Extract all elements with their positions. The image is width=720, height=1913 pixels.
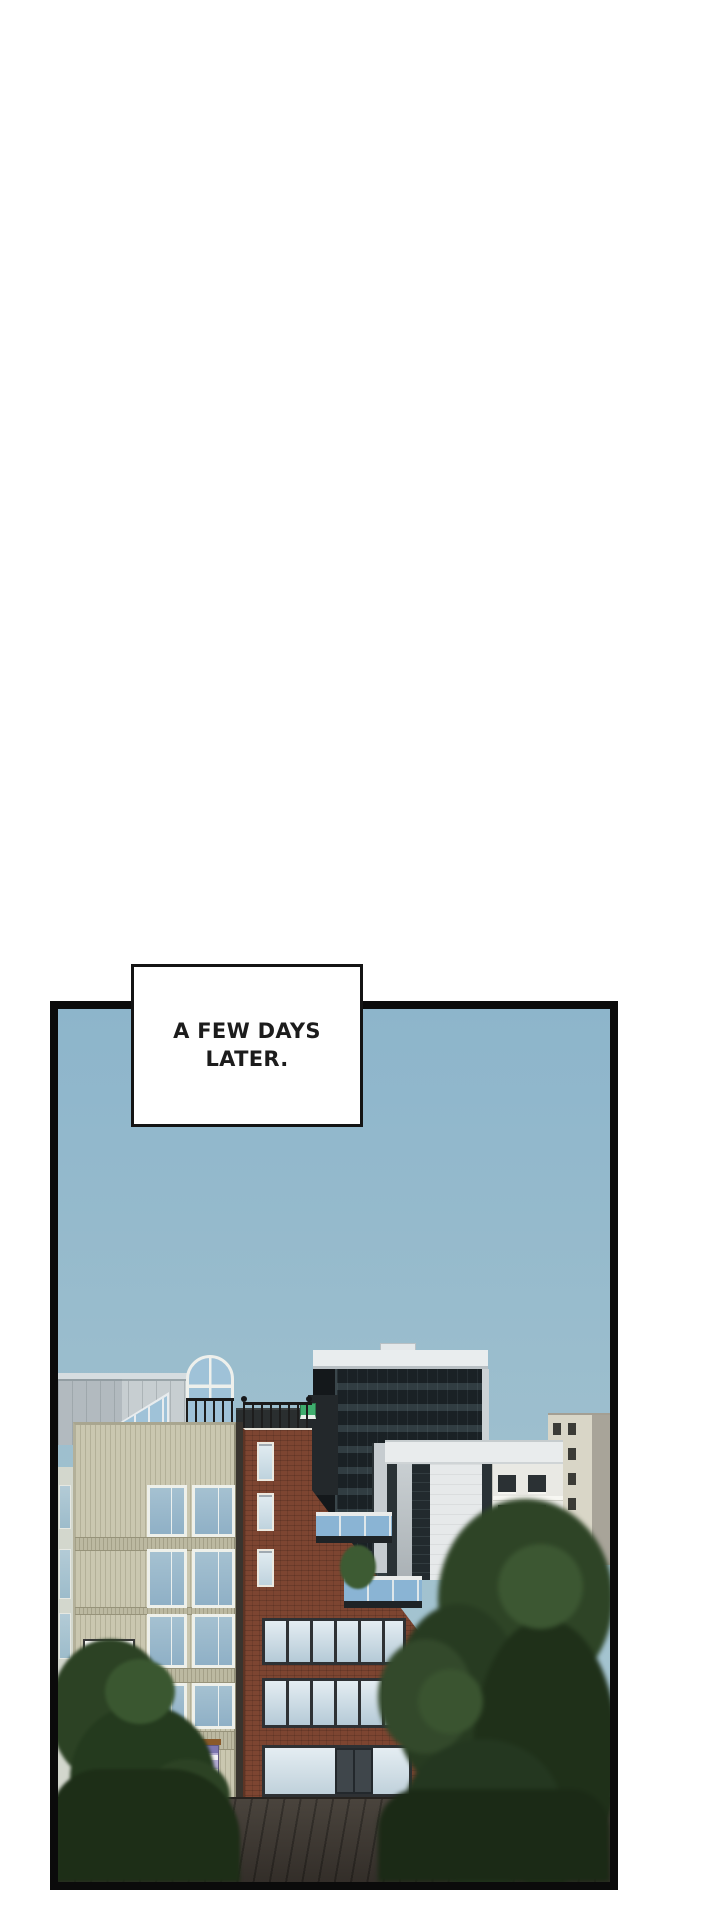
window — [192, 1549, 235, 1608]
window — [192, 1485, 235, 1537]
caption-box: A FEW DAYS LATER. — [131, 964, 363, 1127]
tower-parapet — [313, 1350, 488, 1369]
left-tree — [50, 1619, 250, 1882]
foliage-highlight — [418, 1669, 483, 1734]
foliage — [378, 1789, 610, 1882]
window — [257, 1493, 274, 1531]
brick-roof-railing — [243, 1402, 312, 1431]
caption-line: LATER. — [205, 1046, 288, 1074]
window — [257, 1442, 274, 1481]
shop-door — [335, 1748, 373, 1794]
caption-line: A FEW DAYS — [173, 1018, 321, 1046]
foliage — [50, 1769, 240, 1882]
roof-lamp — [306, 1396, 312, 1402]
window — [147, 1485, 187, 1537]
foliage-highlight — [105, 1659, 175, 1724]
window — [59, 1549, 71, 1599]
comic-page: A FEW DAYS LATER. — [0, 0, 720, 1913]
window — [147, 1549, 187, 1608]
balcony-plant — [340, 1545, 376, 1589]
rooftop-railing — [186, 1398, 234, 1424]
window — [257, 1549, 274, 1587]
roof-lamp — [241, 1396, 247, 1402]
foliage-highlight — [498, 1544, 583, 1629]
window — [59, 1485, 71, 1529]
white-building-roof-band — [385, 1440, 563, 1464]
comic-panel — [50, 1001, 618, 1890]
right-tree — [378, 1489, 610, 1882]
